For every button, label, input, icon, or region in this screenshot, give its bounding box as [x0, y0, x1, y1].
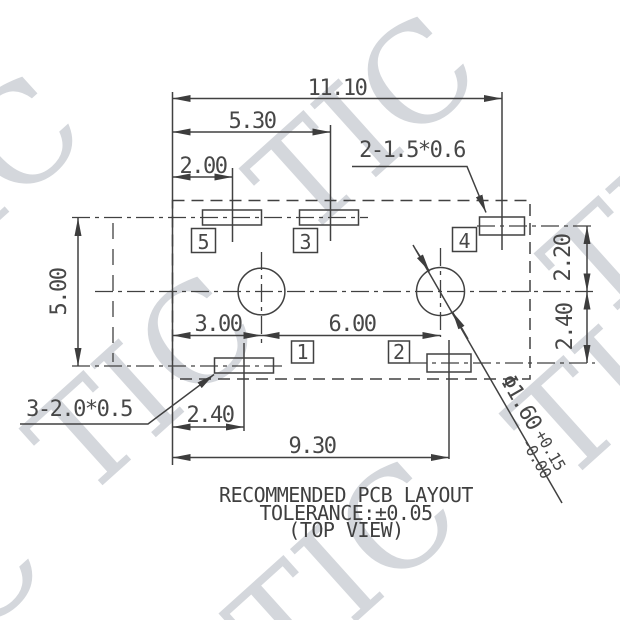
- dim-text-overall-width: 11.10: [308, 76, 367, 101]
- pad3-label: 3: [299, 230, 311, 254]
- dim-text-row-spacing: 5.00: [47, 268, 72, 315]
- hole-diameter-arrow-upper: [416, 250, 430, 272]
- pad1-label: 1: [296, 340, 308, 364]
- dim-text-pad2-offset: 2.40: [553, 303, 578, 350]
- hole-diameter-arrow-lower: [453, 312, 469, 339]
- dim-text-hole-pitch: 6.00: [329, 312, 376, 337]
- dim-text-hole1-x: 3.00: [195, 312, 242, 337]
- dim-text-pad3-x: 5.30: [229, 109, 276, 134]
- dim-text-pad5-x: 2.00: [180, 154, 227, 179]
- watermark-text: TIC: [0, 480, 73, 620]
- title-line3: (TOP VIEW): [288, 518, 403, 542]
- pcb-layout-drawing: TIC TIC TIC TIC TIC TIC TIC: [0, 0, 620, 620]
- pad4-label: 4: [458, 229, 470, 253]
- pad5-label: 5: [197, 230, 209, 254]
- pad2-label: 2: [393, 340, 405, 364]
- callout-small-pads: 2-1.5*0.6: [359, 138, 465, 163]
- dim-text-pad2-x: 9.30: [289, 434, 336, 459]
- callout-large-pads: 3-2.0*0.5: [26, 397, 132, 422]
- dim-text-pad4-offset: 2.20: [551, 234, 576, 281]
- dim-text-pad1-x: 2.40: [187, 403, 234, 428]
